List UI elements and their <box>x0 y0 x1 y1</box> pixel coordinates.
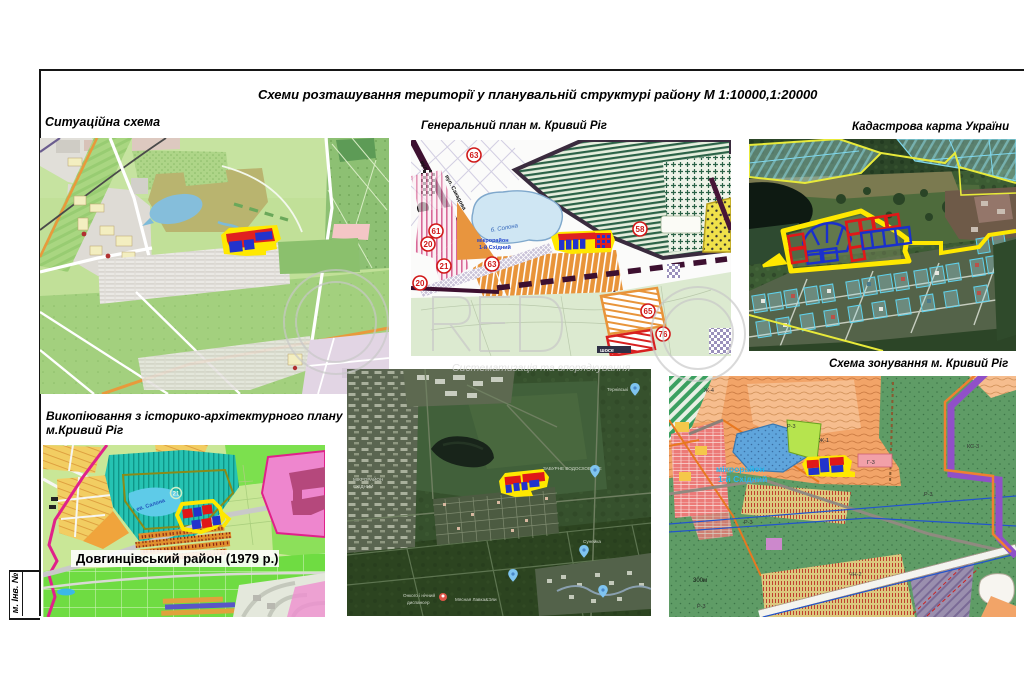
svg-text:Систематизація та впорядкуванн: Систематизація та впорядкування <box>452 362 631 374</box>
